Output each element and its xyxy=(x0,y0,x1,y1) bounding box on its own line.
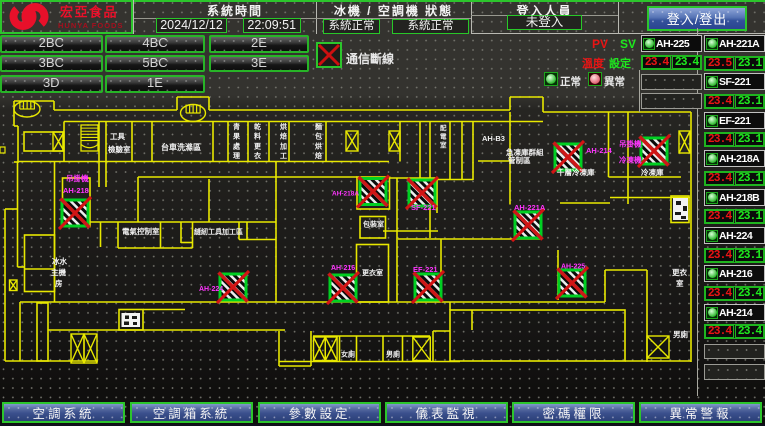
svg-text:冷凍機: 冷凍機 xyxy=(619,155,642,165)
svg-text:AH-221A: AH-221A xyxy=(514,203,546,212)
svg-text:AH-218: AH-218 xyxy=(63,186,89,195)
svg-text:青果處理: 青果處理 xyxy=(233,122,241,160)
svg-text:男廁: 男廁 xyxy=(386,350,400,359)
svg-text:吊掛機: 吊掛機 xyxy=(619,139,642,149)
svg-text:冰水: 冰水 xyxy=(52,256,67,266)
svg-text:檢驗室: 檢驗室 xyxy=(108,144,131,154)
svg-text:女廁: 女廁 xyxy=(341,350,355,359)
svg-text:麵包烘焙: 麵包烘焙 xyxy=(314,122,322,160)
svg-text:AH-B3: AH-B3 xyxy=(482,134,505,143)
svg-text:台車洗滌區: 台車洗滌區 xyxy=(161,142,201,152)
svg-text:電氣控制室: 電氣控制室 xyxy=(122,226,160,236)
svg-text:更衣室: 更衣室 xyxy=(362,268,383,277)
svg-text:房: 房 xyxy=(55,278,63,288)
svg-text:AH-218A: AH-218A xyxy=(332,191,359,198)
svg-text:AH-216: AH-216 xyxy=(331,265,355,272)
svg-text:千層冷凍庫: 千層冷凍庫 xyxy=(557,167,595,177)
svg-text:冷凍庫: 冷凍庫 xyxy=(641,167,664,177)
svg-text:更衣: 更衣 xyxy=(672,267,687,277)
svg-text:工具: 工具 xyxy=(110,132,125,141)
svg-text:縫紉工具加工區: 縫紉工具加工區 xyxy=(194,227,243,236)
svg-text:AH-214: AH-214 xyxy=(586,146,613,155)
svg-text:配電室: 配電室 xyxy=(440,123,447,149)
svg-text:烘焙加工: 烘焙加工 xyxy=(279,122,287,160)
svg-text:乾料更衣: 乾料更衣 xyxy=(254,122,262,160)
svg-text:SF-221: SF-221 xyxy=(411,203,436,212)
svg-text:吊掛機: 吊掛機 xyxy=(66,173,89,183)
svg-text:包裝室: 包裝室 xyxy=(363,220,384,229)
svg-text:管制區: 管制區 xyxy=(508,155,531,165)
svg-text:EF-221: EF-221 xyxy=(413,265,438,274)
svg-text:室: 室 xyxy=(676,278,684,288)
svg-text:男廁: 男廁 xyxy=(673,329,688,339)
svg-text:主機: 主機 xyxy=(51,267,66,277)
svg-text:AH-224: AH-224 xyxy=(199,286,223,293)
svg-text:AH-225: AH-225 xyxy=(561,264,585,271)
